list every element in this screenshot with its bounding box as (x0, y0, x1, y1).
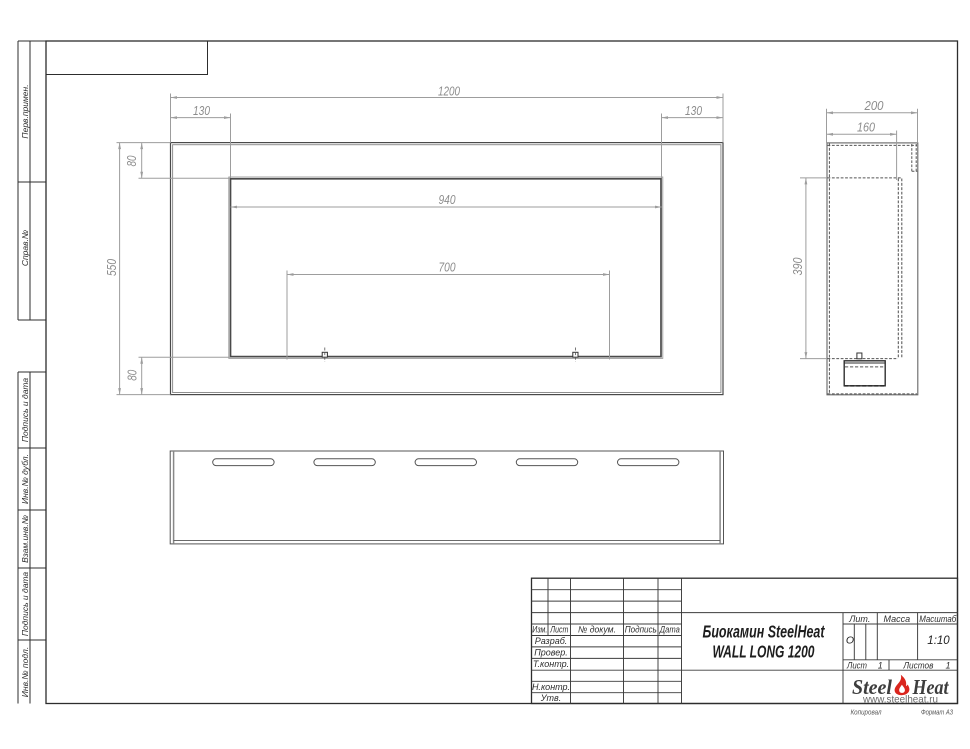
svg-text:80: 80 (124, 155, 139, 167)
svg-text:1: 1 (878, 661, 883, 671)
svg-text:1: 1 (945, 661, 950, 671)
svg-text:Масштаб: Масштаб (919, 614, 957, 624)
svg-text:200: 200 (864, 98, 885, 113)
svg-text:Подпись и дата: Подпись и дата (20, 572, 30, 637)
svg-text:www.steelheat.ru: www.steelheat.ru (862, 694, 938, 706)
svg-text:Масса: Масса (883, 614, 910, 624)
svg-text:940: 940 (439, 192, 457, 207)
svg-text:1:10: 1:10 (927, 635, 950, 647)
svg-text:Листов: Листов (902, 661, 933, 671)
svg-text:80: 80 (125, 369, 140, 381)
svg-text:550: 550 (104, 258, 119, 276)
svg-text:Н.контр.: Н.контр. (532, 682, 570, 692)
svg-text:Дата: Дата (659, 625, 680, 635)
svg-text:№ докум.: № докум. (578, 625, 616, 635)
svg-text:Утв.: Утв. (540, 693, 561, 703)
svg-text:WALL LONG 1200: WALL LONG 1200 (713, 642, 815, 662)
svg-text:Лист: Лист (550, 625, 569, 635)
svg-text:Разраб.: Разраб. (535, 636, 568, 646)
svg-text:Перв.примен.: Перв.примен. (20, 84, 30, 138)
svg-text:Подпись: Подпись (625, 625, 657, 635)
svg-text:Взам.инв.№: Взам.инв.№ (20, 515, 30, 563)
svg-text:Подпись и дата: Подпись и дата (20, 378, 30, 443)
svg-text:130: 130 (685, 103, 703, 118)
svg-text:390: 390 (790, 257, 805, 276)
svg-text:Копировал: Копировал (851, 708, 883, 717)
svg-text:130: 130 (193, 103, 211, 118)
svg-text:Лист: Лист (846, 661, 867, 671)
svg-text:Инв.№ дубл.: Инв.№ дубл. (20, 454, 30, 504)
svg-text:Лит.: Лит. (848, 614, 870, 624)
svg-text:Провер.: Провер. (534, 648, 568, 658)
svg-text:1200: 1200 (438, 84, 461, 99)
svg-text:700: 700 (439, 260, 457, 275)
svg-text:Изм.: Изм. (532, 625, 547, 635)
svg-text:Справ.№: Справ.№ (20, 230, 30, 266)
svg-text:Т.контр.: Т.контр. (533, 659, 569, 669)
svg-text:Инв.№ подл.: Инв.№ подл. (20, 647, 30, 697)
svg-text:Биокамин SteelHeat: Биокамин SteelHeat (703, 622, 826, 642)
svg-text:О: О (846, 635, 854, 647)
svg-text:160: 160 (857, 119, 876, 134)
svg-text:Формат А3: Формат А3 (921, 708, 954, 717)
